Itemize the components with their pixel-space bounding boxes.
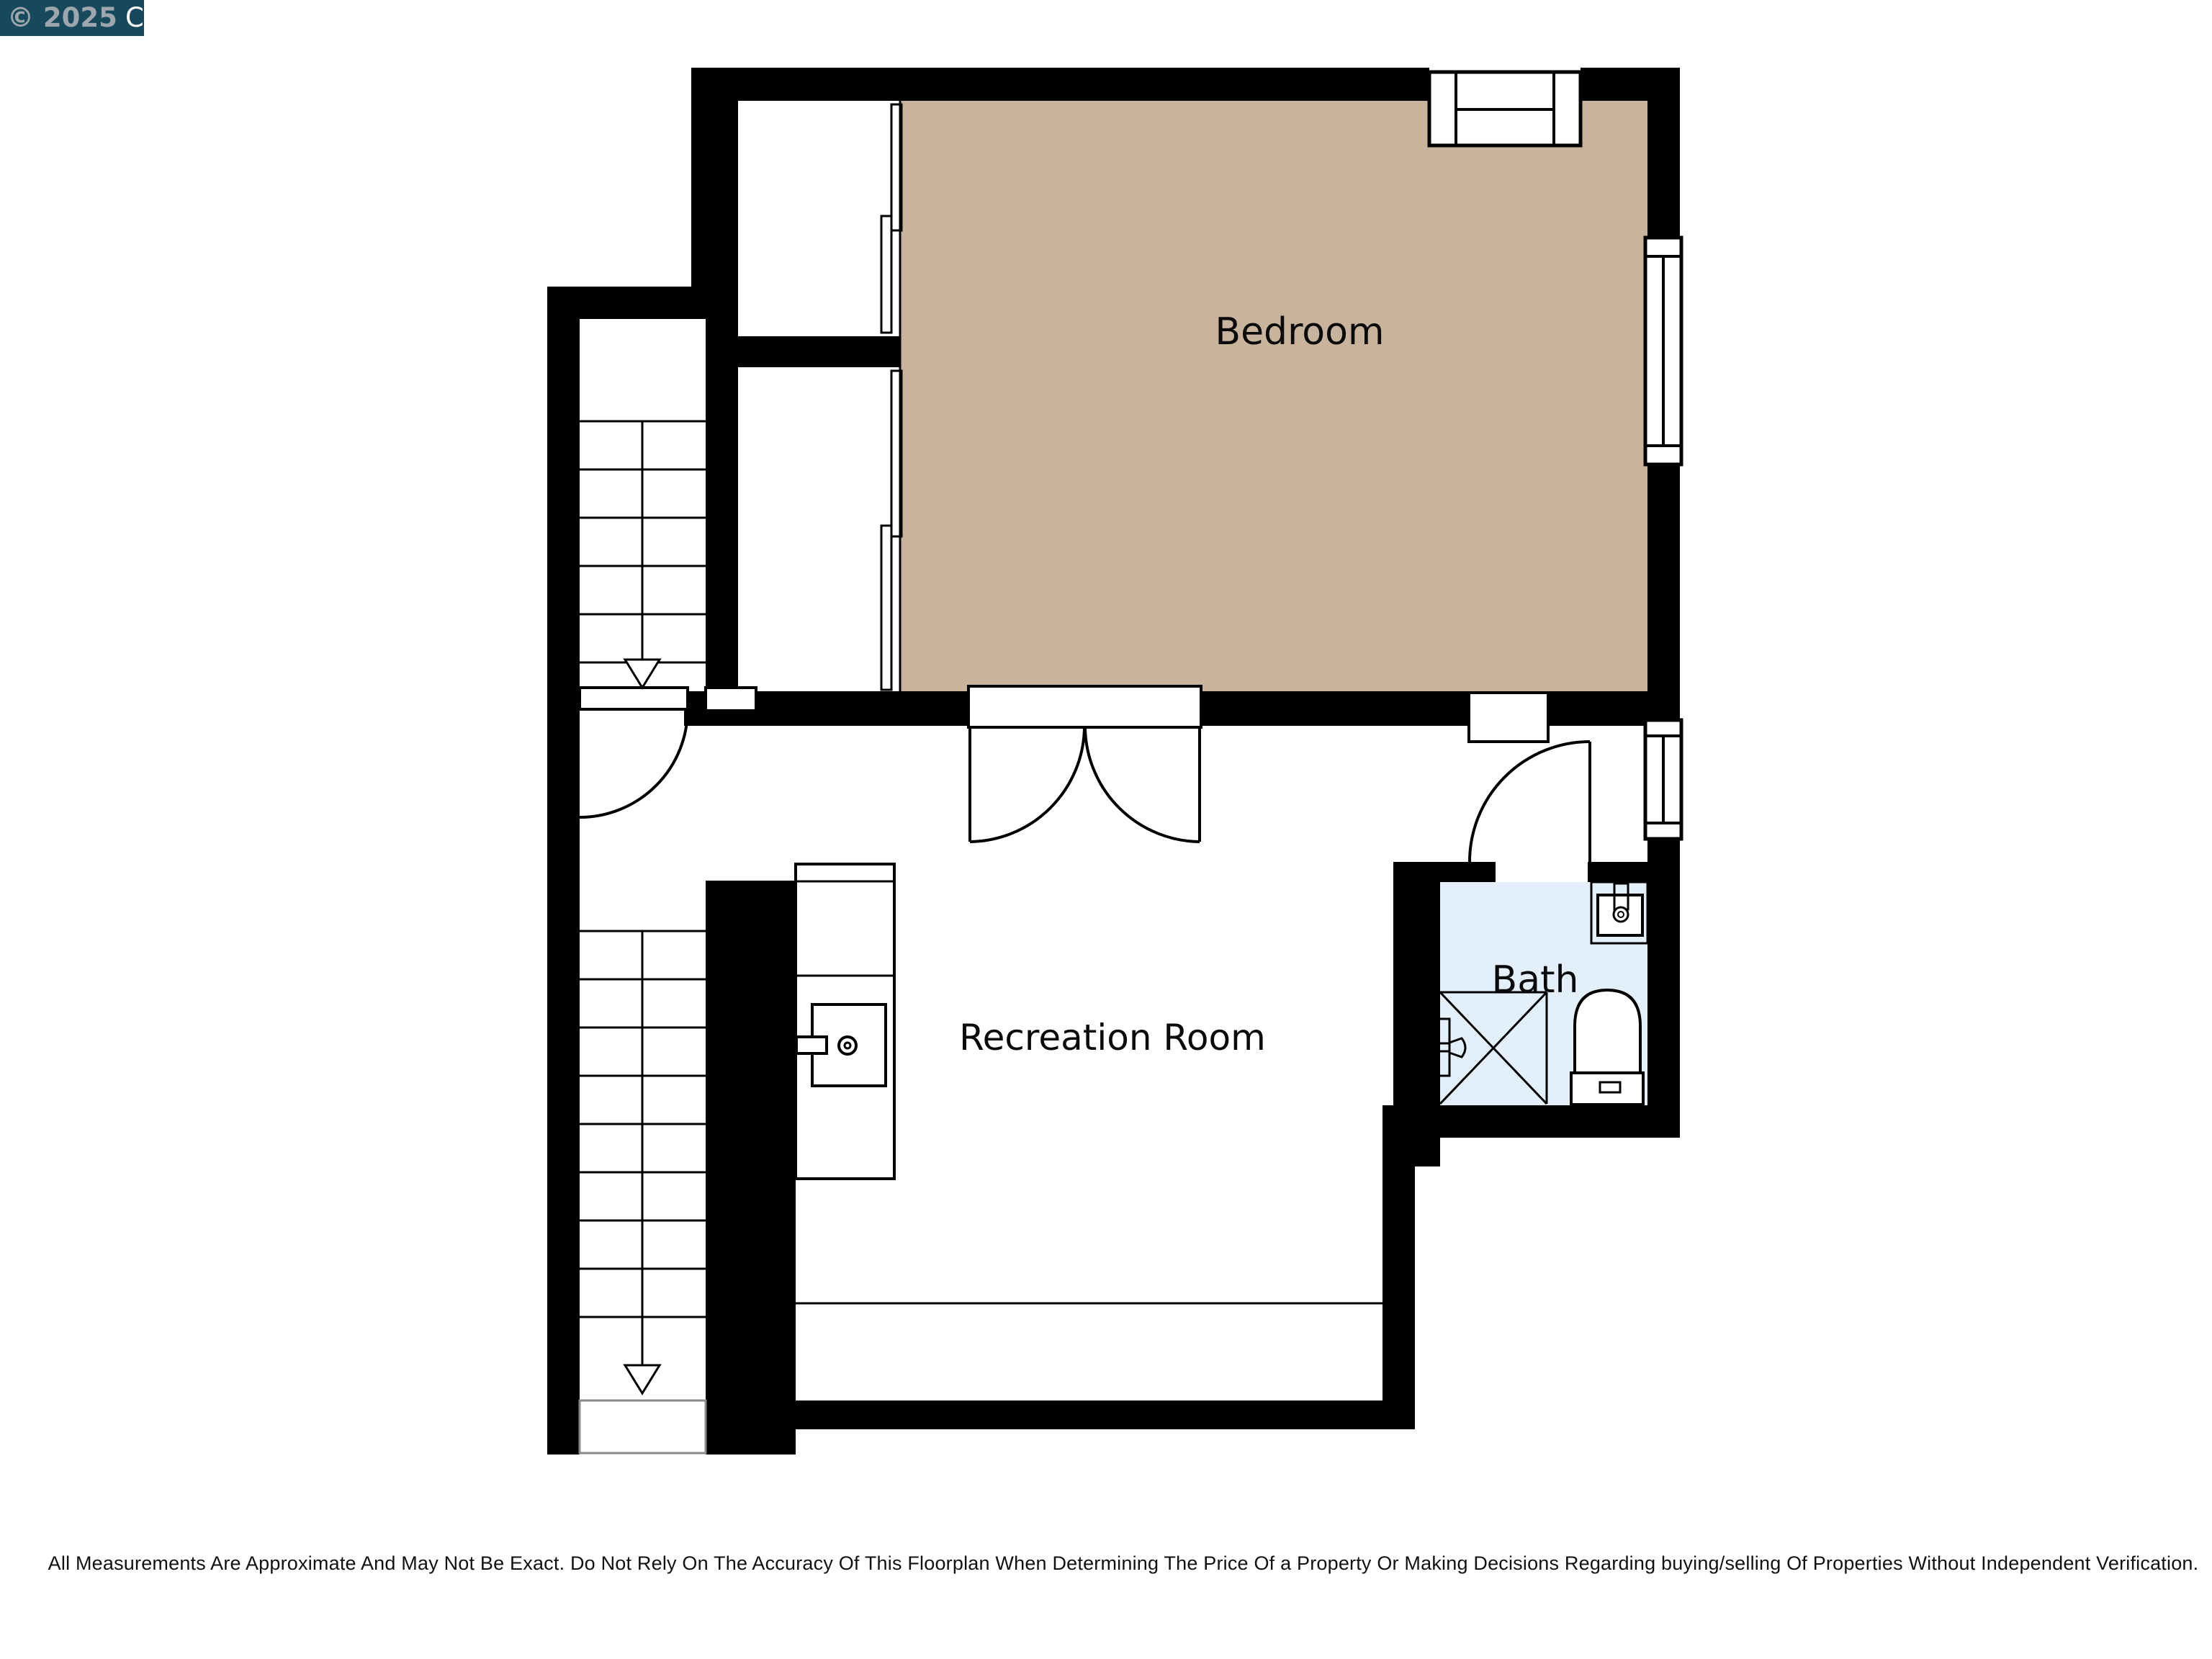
stair-closet-wall	[706, 319, 738, 709]
stair-counter-wall	[706, 881, 796, 1455]
sliding-door-closet-1	[881, 104, 902, 333]
down-arrow-icon	[625, 660, 660, 688]
copyright-badge: © 2025 CCAR	[0, 0, 205, 36]
sliding-door-closet-2	[881, 371, 902, 690]
bedroom-bottom-wall-right	[1201, 691, 1647, 726]
badge-org-text: CCAR	[125, 2, 205, 33]
stairs-upper	[580, 421, 706, 688]
french-door	[968, 686, 1201, 842]
toilet	[1571, 990, 1643, 1105]
left-wall-main	[547, 287, 580, 1455]
right-wall-c	[1647, 839, 1680, 1138]
bath-top-wall-left	[1393, 862, 1496, 882]
down-arrow-icon	[625, 1365, 660, 1393]
right-wall-a	[1647, 68, 1680, 238]
stair-door	[580, 688, 688, 817]
window-right-hall	[1645, 720, 1681, 839]
bath-bottom-wall	[1382, 1105, 1680, 1138]
badge-copyright-text: © 2025	[7, 2, 117, 33]
right-wall-b	[1647, 464, 1680, 720]
counter	[796, 864, 894, 1179]
top-wall-left	[691, 68, 1429, 101]
disclaimer-text: All Measurements Are Approximate And May…	[48, 1552, 2199, 1574]
bath-top-wall-right	[1588, 862, 1647, 882]
stairs-lower	[580, 931, 706, 1453]
rec-bottom-wall	[706, 1401, 1415, 1429]
window-top	[1429, 72, 1581, 145]
shelf-niche-left	[706, 688, 756, 711]
shelf-niche-right	[1469, 693, 1548, 742]
rec-right-wall	[1382, 1138, 1415, 1429]
left-wall-upper	[691, 68, 738, 319]
bath-label: Bath	[1492, 958, 1579, 1002]
window-right-bedroom	[1645, 238, 1681, 464]
stair-landing-lower	[580, 1401, 706, 1453]
bedroom-area	[900, 101, 1647, 691]
bedroom-label: Bedroom	[1215, 310, 1384, 354]
closet-divider-wall	[738, 336, 900, 367]
recreation-room-label: Recreation Room	[959, 1017, 1266, 1058]
closets	[881, 101, 902, 691]
floor-plan: Bedroom Recreation Room Bath © 2025 CCAR…	[0, 0, 2212, 1659]
svg-text:© 2025 CCAR: © 2025 CCAR	[7, 2, 205, 33]
bath-door	[1470, 742, 1590, 862]
